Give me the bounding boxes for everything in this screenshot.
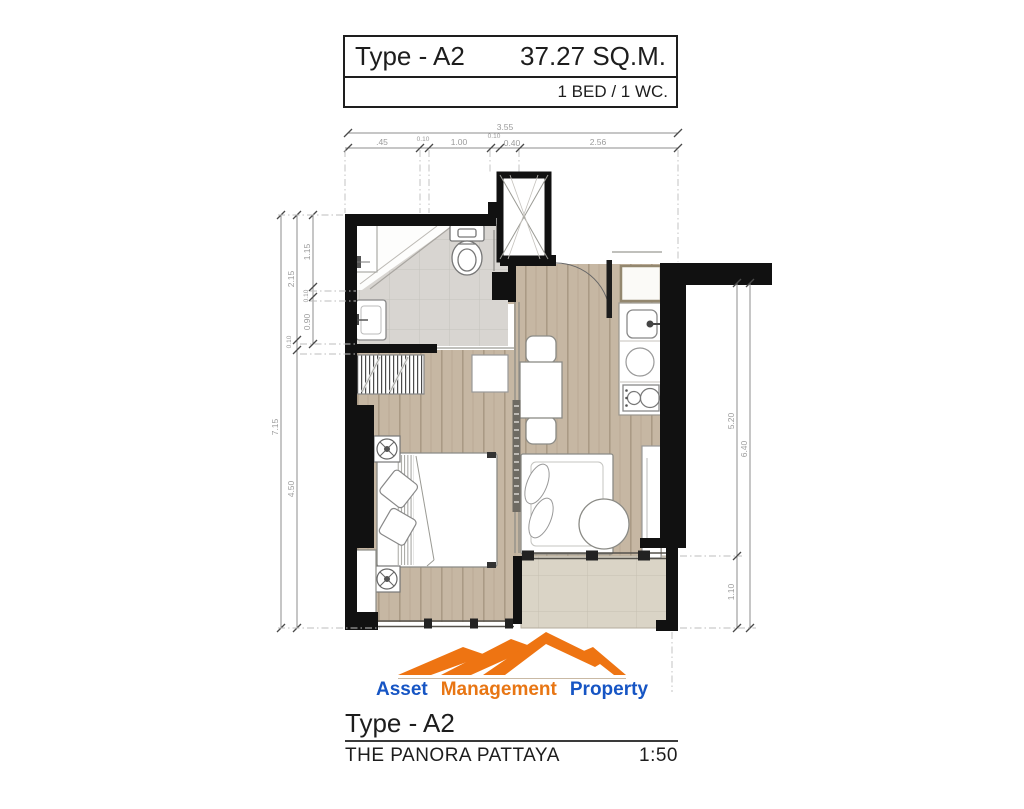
scale-label: 1:50 [639, 745, 678, 767]
logo-word-property: Property [570, 679, 648, 701]
dim-left-in1: 1.15 [302, 243, 312, 260]
dining-chair-icon [526, 417, 556, 444]
balcony-east-wall [666, 545, 678, 628]
dim-top-s4: 0.10 [488, 133, 501, 140]
logo-word-asset: Asset [376, 679, 428, 701]
dining-table [520, 362, 562, 418]
dining-chair-icon [526, 336, 556, 363]
stove-icon [623, 385, 660, 411]
southwest-corner-wall [345, 612, 378, 630]
footer-unit-type: Type - A2 [345, 708, 678, 742]
unit-type-label: Type - A2 [355, 41, 465, 72]
nightstand-top [374, 436, 400, 462]
nightstand-bottom [374, 566, 400, 592]
unit-area-label: 37.27 SQ.M. [520, 41, 666, 72]
dim-top-s6: 2.56 [590, 137, 607, 147]
dim-right-s1: 5.20 [726, 412, 736, 429]
bathroom-east-column [492, 272, 508, 300]
bathroom-north-wall [345, 214, 496, 226]
dim-top-s3: 1.00 [451, 137, 468, 147]
west-column [345, 405, 374, 548]
dim-right-s2: 1.10 [726, 583, 736, 600]
logo-word-management: Management [441, 679, 557, 701]
entry-partition-wall [508, 264, 516, 302]
coffee-table-icon [579, 499, 629, 549]
dim-top-s2: 0.10 [417, 136, 430, 143]
east-wall-end [640, 538, 686, 548]
dim-right-overall: 6.40 [739, 440, 749, 457]
floor-plan-page: { "header": { "type_label": "Type - A2",… [0, 0, 1024, 809]
round-basin-icon [626, 348, 654, 376]
balcony-corner-wall [656, 620, 678, 631]
dim-left-in2: 0.10 [303, 289, 310, 302]
wardrobe-icon [352, 355, 424, 394]
dim-left-mid1: 2.15 [286, 270, 296, 287]
balcony-west-wall [513, 556, 522, 624]
kitchen-unit [619, 266, 662, 415]
dining-set [520, 336, 562, 444]
company-logo: Asset Management Property [383, 631, 641, 703]
dim-left-in3: 0.90 [302, 313, 312, 330]
dim-top-s5: 0.40 [504, 138, 521, 148]
unit-config-label: 1 BED / 1 WC. [557, 82, 668, 102]
east-wall [660, 285, 686, 540]
dim-left-mid3: 4.50 [286, 480, 296, 497]
fridge-cabinet [621, 266, 661, 301]
bed-icon [377, 452, 497, 568]
service-shaft [500, 175, 548, 259]
title-block: Type - A2 37.27 SQ.M. 1 BED / 1 WC. [343, 35, 678, 108]
dim-left-overall: 7.15 [270, 418, 280, 435]
dim-left-mid2: 0.10 [286, 335, 293, 348]
bath-bedroom-wall [345, 344, 437, 353]
balcony-tile-floor [521, 556, 668, 628]
footer-title-block: Type - A2 THE PANORA PATTAYA 1:50 [345, 708, 678, 767]
northeast-wall-band [660, 263, 772, 285]
bedroom-desk [472, 355, 508, 392]
sliding-door-panel [513, 400, 521, 512]
toilet-icon [450, 225, 484, 275]
dim-top-s1: .45 [376, 137, 388, 147]
dim-top-overall: 3.55 [497, 122, 514, 132]
project-name-label: THE PANORA PATTAYA [345, 745, 560, 767]
